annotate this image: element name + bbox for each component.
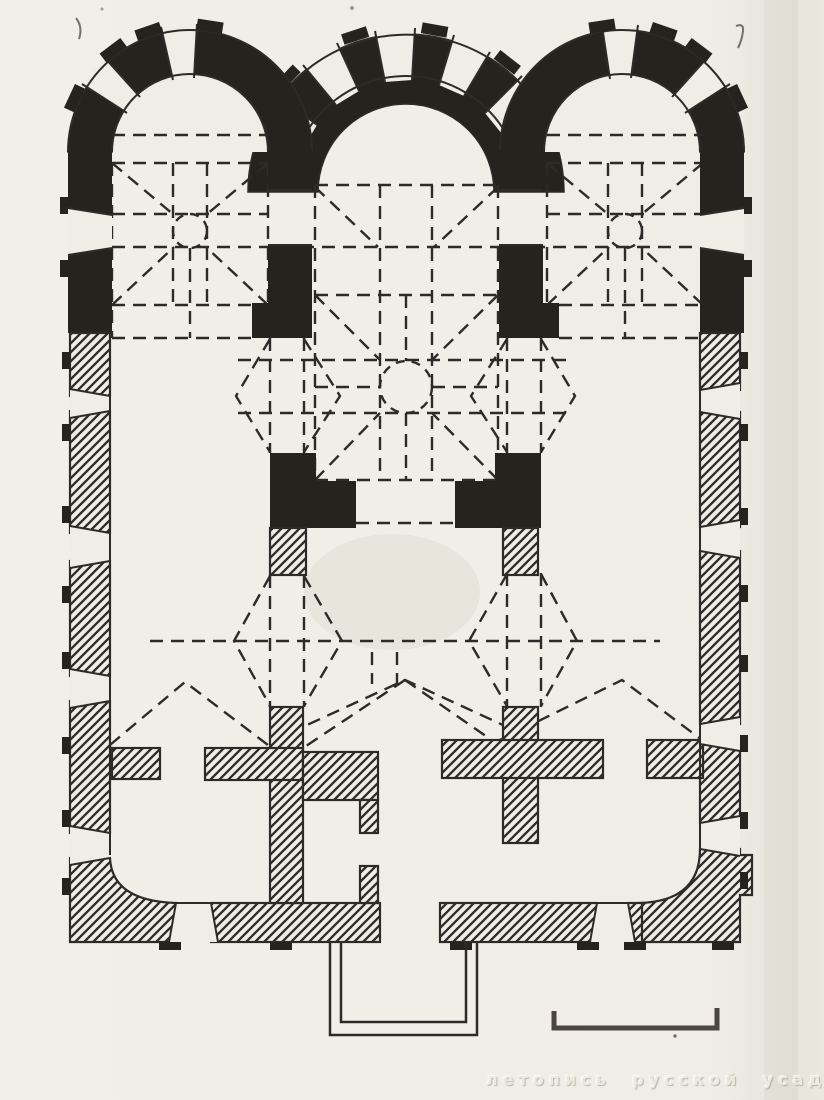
right-bay-vault-grid — [547, 135, 703, 338]
porch-outline — [330, 942, 477, 1035]
west-room-vault-lines — [110, 652, 702, 748]
vault-projection-lines — [110, 135, 703, 748]
scale-bar — [554, 1008, 717, 1028]
entrance-door — [380, 903, 440, 942]
left-bay-vault-grid — [112, 135, 268, 338]
floor-plan-drawing — [0, 0, 824, 1100]
scanned-plan-page: летопись русской усадьбы — [0, 0, 824, 1100]
watermark-text: летопись русской усадьбы — [486, 1070, 824, 1089]
